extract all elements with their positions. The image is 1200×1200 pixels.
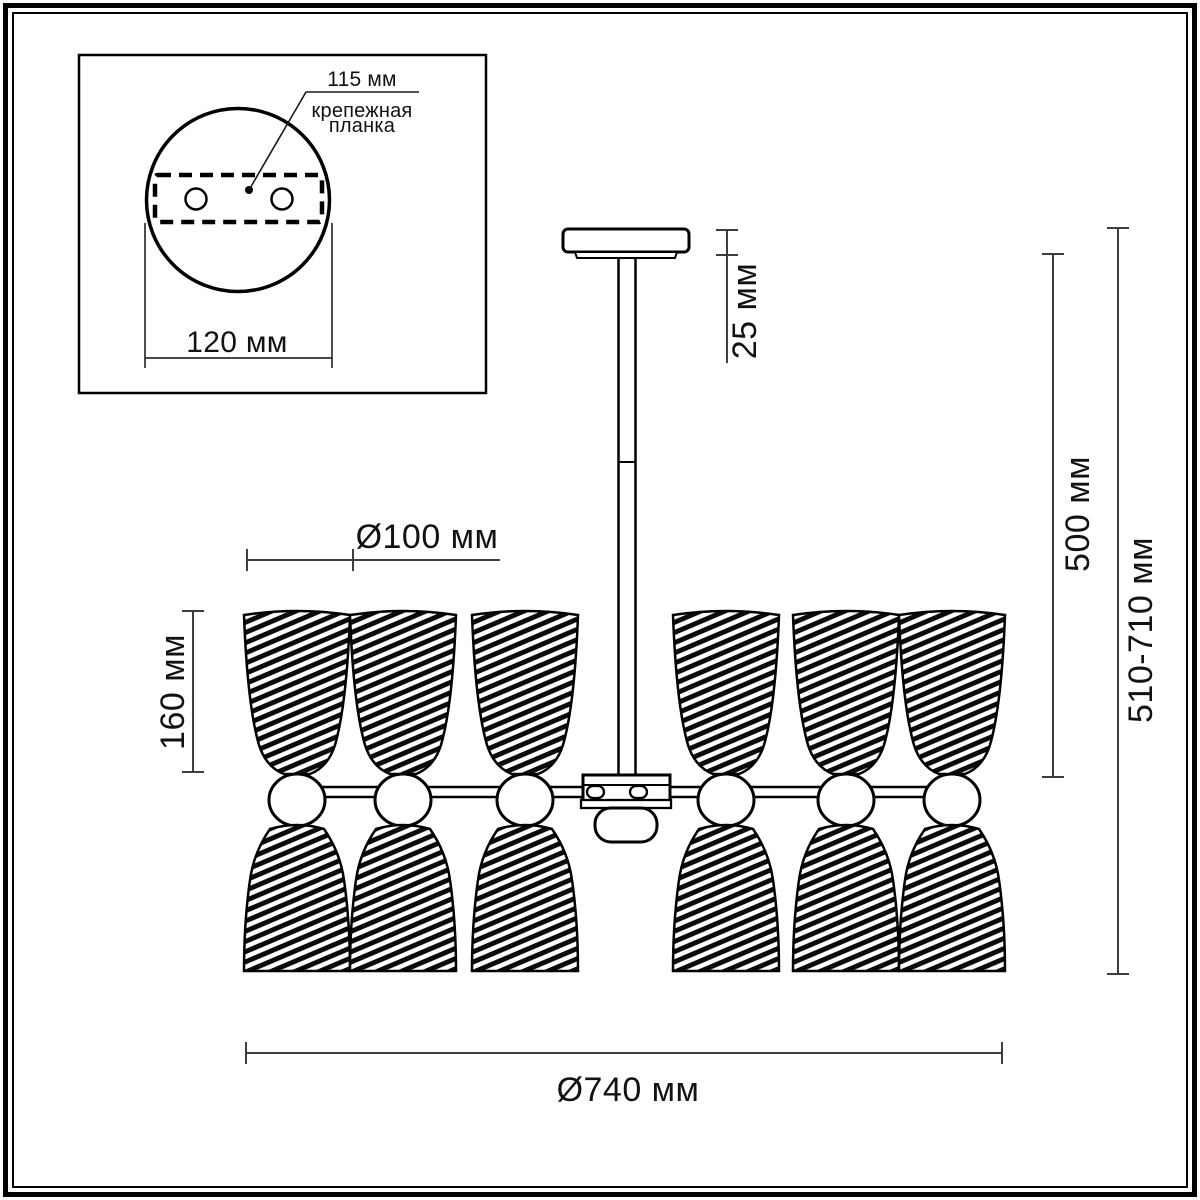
total-diameter-dimension <box>246 1042 1002 1064</box>
shade <box>793 825 899 971</box>
shade <box>350 611 456 774</box>
rod-length-label: 500 мм <box>1059 456 1097 572</box>
central-hub <box>581 775 671 842</box>
shade <box>673 611 779 774</box>
total-height-label: 510-710 мм <box>1122 537 1160 723</box>
mounting-hole-left <box>186 189 207 210</box>
canopy-circle <box>147 109 330 292</box>
plate-label-line2: планка <box>329 115 396 137</box>
shade <box>350 825 456 971</box>
lower-shades <box>244 825 1005 971</box>
shade <box>472 611 578 774</box>
total-diameter-label: Ø740 мм <box>557 1071 700 1109</box>
drawing-canvas: 115 мм крепежная планка 120 мм <box>0 0 1200 1200</box>
mounting-inset-panel: 115 мм крепежная планка 120 мм <box>79 55 486 393</box>
shade <box>244 611 350 774</box>
canopy-height-label: 25 мм <box>726 263 764 360</box>
canopy-diameter-label: 120 мм <box>186 326 287 359</box>
hanging-rod <box>619 256 636 778</box>
shade <box>673 825 779 971</box>
shade-height-label: 160 мм <box>154 634 192 750</box>
shade <box>793 611 899 774</box>
hole-spacing-label: 115 мм <box>327 68 396 91</box>
shade <box>244 825 350 971</box>
mounting-hole-right <box>272 189 293 210</box>
ceiling-canopy <box>563 229 689 258</box>
shade-diameter-label: Ø100 мм <box>356 518 499 556</box>
technical-drawing: 115 мм крепежная планка 120 мм <box>0 0 1200 1200</box>
hub-finial <box>595 808 657 842</box>
shade <box>472 825 578 971</box>
shade <box>899 611 1005 774</box>
shade <box>899 825 1005 971</box>
